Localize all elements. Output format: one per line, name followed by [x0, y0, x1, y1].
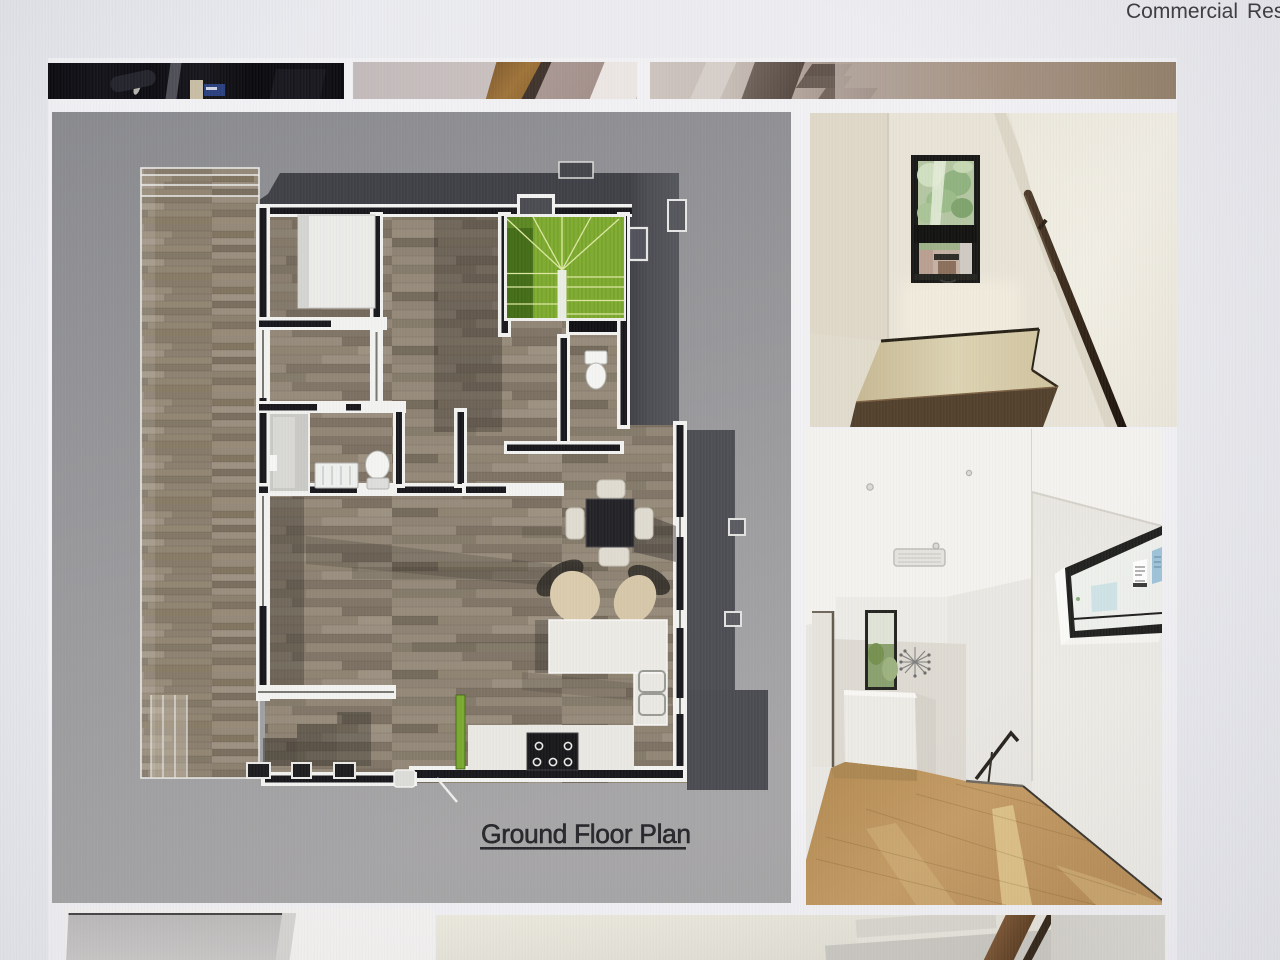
svg-text:Ground Floor Plan: Ground Floor Plan	[481, 819, 691, 849]
